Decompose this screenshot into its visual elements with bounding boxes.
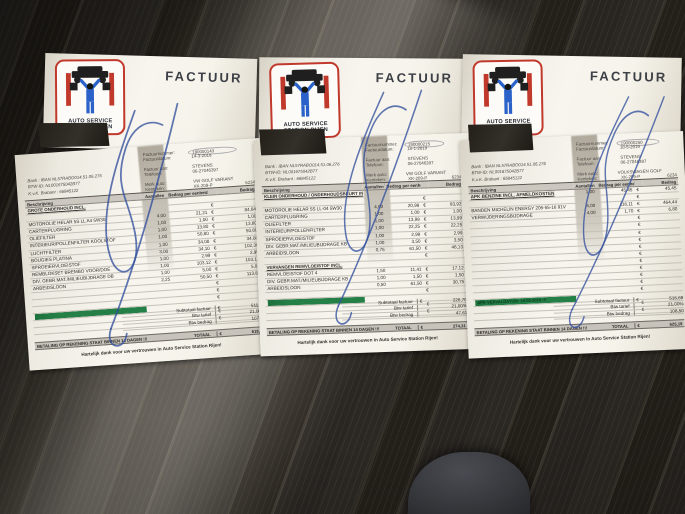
item-quantity: 1,00	[364, 232, 386, 240]
totals-currency	[215, 318, 225, 324]
item-quantity: 1,00	[364, 225, 386, 233]
item-description: SPROEIERVLOEISTOF	[265, 235, 315, 242]
totals-value: 47,61	[427, 310, 467, 317]
item-description: VERVANGEN REMVLOEISTOF INCL.	[266, 262, 342, 270]
totals-currency	[417, 311, 427, 317]
item-quantity: 1,00	[365, 275, 387, 283]
item-description: LUCHTFILTER	[30, 249, 61, 256]
item-description: REMVLOEISTOF DOT 4	[267, 270, 318, 277]
totals-label: Btw bedrag	[343, 312, 418, 320]
payment-terms-notice: BETALING OP REKENING STAAT BINNEN 14 DAG…	[267, 325, 396, 334]
item-quantity: 0,75	[364, 246, 386, 254]
thanks-note: Hartelijk dank voor uw vertrouwen in Aut…	[260, 334, 475, 347]
car-lift-mechanic-icon	[278, 67, 331, 118]
total-currency: €	[634, 322, 644, 327]
totals-block: Subtotaal factuur € 226,70 Btw tarief 21…	[342, 297, 467, 321]
totals-currency: €	[215, 305, 225, 311]
payment-total-bar: BETALING OP REKENING STAAT BINNEN 14 DAG…	[267, 321, 468, 336]
totals-currency	[634, 310, 644, 316]
car-lift-mechanic-icon	[64, 64, 116, 114]
item-description: OLIEFILTER	[29, 235, 55, 242]
item-description: OLIEFILTER	[265, 222, 291, 228]
totals-currency: €	[633, 297, 643, 303]
total-label: TOTAAL	[612, 323, 635, 329]
totals-value: 108,50	[644, 308, 684, 315]
car-lift-mechanic-icon	[482, 64, 535, 115]
auto-service-station-rijen-logo: AUTO SERVICE STATION RIJEN	[269, 62, 341, 140]
invoice-body-sheet: Factuurnummer:190000215 Factuurdatum:18-…	[253, 133, 475, 356]
payment-terms-notice: BETALING OP REKENING STAAT BINNEN 14 DAG…	[474, 324, 611, 335]
total-amount: 274,31	[428, 323, 468, 329]
item-description: CARTERPLUGRING	[265, 214, 308, 220]
invoice-title: FACTUUR	[590, 68, 668, 84]
totals-currency	[417, 305, 427, 311]
bank-details: Bank : IBAN NL57RABO014.51.06.276 BTW-ID…	[471, 161, 546, 184]
kvk-line: K.v.K. Brabant : 66845122	[265, 174, 340, 183]
item-description: ARBEIDSLOON	[33, 284, 66, 291]
totals-currency: €	[417, 299, 427, 305]
photo-of-three-invoices-on-desk: AUTO SERVICE STATION RIJEN FACTUUR Factu…	[0, 0, 685, 514]
item-description: INTERIEUR/POLLENFILTER	[265, 228, 325, 235]
item-description: ARBEIDSLOON	[267, 285, 300, 291]
total-currency: €	[418, 324, 428, 329]
invoice-title: FACTUUR	[376, 70, 454, 86]
total-label: TOTAAL	[194, 331, 217, 338]
bank-details: Bank : IBAN NL57RABO014.51.06.276 BTW-ID…	[27, 173, 103, 197]
item-quantity: 1,00	[364, 239, 386, 247]
item-quantity: 4,00	[363, 204, 385, 212]
total-currency: €	[216, 330, 226, 336]
totals-currency	[633, 303, 643, 309]
total-label: TOTAAL	[395, 324, 418, 330]
bank-details: Bank : IBAN NL57RABO014.51.06.276 BTW-ID…	[265, 162, 340, 184]
totals-currency	[215, 311, 225, 317]
item-quantity: 0,50	[366, 282, 388, 290]
invoice-body-sheet: Factuurnummer:180000143 Factuurdatum:14-…	[15, 138, 275, 371]
invoice-title: FACTUUR	[165, 68, 243, 85]
invoice-body-sheet: Factuurnummer:190000250 Factuurdatum:18-…	[459, 131, 685, 359]
item-description: ARBEIDSLOON	[266, 250, 299, 256]
total-amount: 625,19	[644, 321, 684, 328]
